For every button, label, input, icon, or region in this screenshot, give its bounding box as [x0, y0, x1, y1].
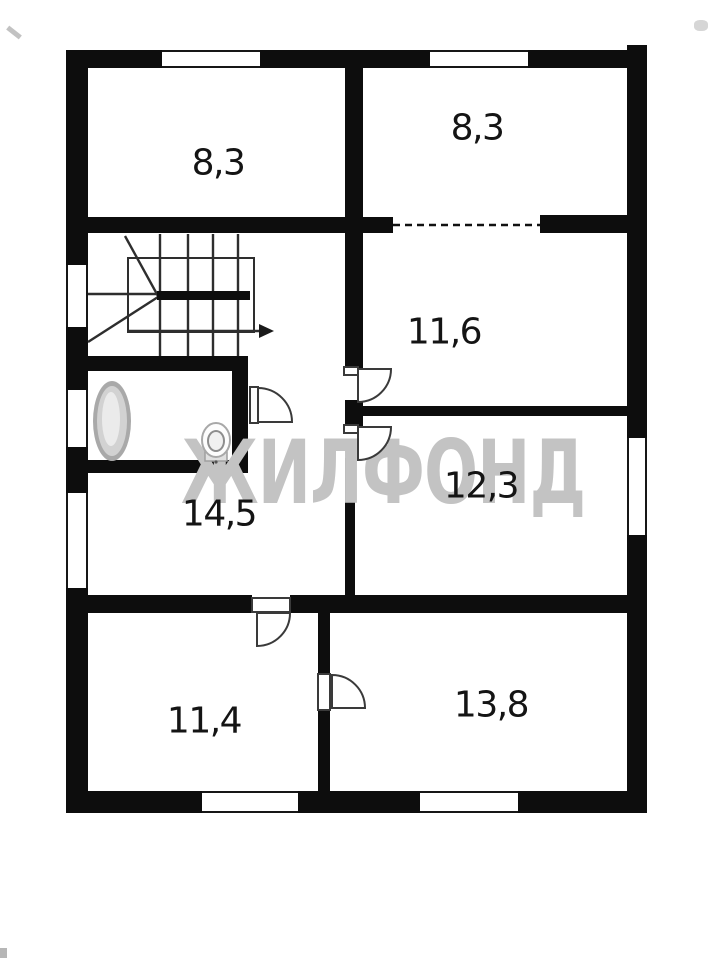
room-area-label-top-left: 8,3 — [192, 143, 245, 184]
door-swing-icon-room-11-4 — [252, 598, 290, 646]
toilet-icon — [202, 423, 230, 464]
room-area-label-bottom-left: 11,4 — [167, 701, 241, 742]
stairs-handrail — [157, 291, 250, 300]
door-swing-icon-room-13-8 — [318, 674, 365, 710]
door-swing-icon-bathroom — [250, 387, 292, 423]
door-swing-icon-room-12-3 — [344, 425, 391, 460]
room-area-label-right: 12,3 — [444, 466, 518, 507]
door-swing-icon-room-11-6 — [344, 367, 391, 402]
room-area-label-hall: 14,5 — [182, 494, 256, 535]
stairs-direction-arrow-icon — [259, 324, 274, 338]
room-area-label-middle-right: 11,6 — [407, 312, 481, 353]
plan-linework — [0, 0, 717, 960]
floor-plan: ЖИЛФОНД — [0, 0, 717, 960]
room-area-label-bottom-right: 13,8 — [454, 685, 528, 726]
room-area-label-top-right: 8,3 — [451, 108, 504, 149]
bathtub-icon — [93, 381, 131, 461]
